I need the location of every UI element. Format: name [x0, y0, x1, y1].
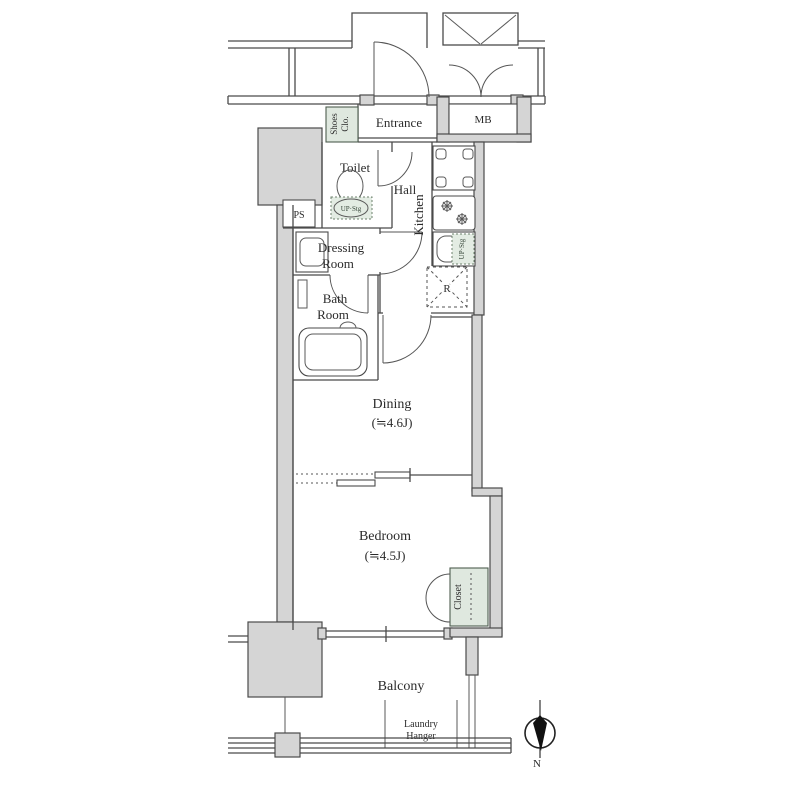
shoes-closet-label-2: Clo. — [340, 116, 350, 131]
laundry-hanger-label-1: Laundry — [404, 719, 438, 730]
floor-plan-page: MB Shoes Clo. Entrance Toilet UP·Stg Hal… — [0, 0, 785, 800]
kitchen-upper-storage-label: UP·Stg — [458, 238, 466, 259]
dining-size-label: (≒4.6J) — [372, 415, 413, 430]
dressing-room-label-2: Room — [322, 256, 354, 271]
toilet-upper-storage-label: UP·Stg — [341, 205, 362, 213]
dressing-door-icon — [380, 232, 422, 274]
sink-icon: UP·Stg — [433, 232, 475, 266]
washer-space-icon — [433, 146, 475, 190]
pipe-space-label: PS — [293, 210, 304, 221]
bedroom-size-label: (≒4.5J) — [365, 548, 406, 563]
meter-box-label: MB — [474, 114, 491, 126]
hall-door-icon — [378, 150, 412, 186]
dining-room: Dining (≒4.6J) — [372, 315, 482, 491]
dining-label: Dining — [373, 397, 412, 412]
closet: Closet — [426, 568, 488, 626]
refrigerator-label: R — [443, 283, 451, 295]
bath-counter-icon — [298, 280, 307, 308]
compass-icon: N — [525, 700, 555, 770]
laundry-hanger-label-2: Hanger — [406, 731, 436, 742]
meter-box: MB — [437, 97, 531, 142]
bedroom-label: Bedroom — [359, 529, 411, 544]
shoes-closet-label-1: Shoes — [329, 113, 339, 135]
kitchen-area: Kitchen UP·Stg — [378, 142, 484, 363]
dining-door-icon — [383, 315, 431, 363]
entrance-door-icon — [374, 42, 429, 97]
entrance-label: Entrance — [376, 115, 422, 130]
toilet-label: Toilet — [340, 160, 371, 175]
bedroom: Bedroom (≒4.5J) Closet — [318, 488, 502, 642]
meter-box-doors-icon — [449, 65, 513, 97]
entrance-area: Shoes Clo. Entrance — [326, 104, 437, 142]
stove-icon — [433, 196, 475, 230]
sliding-door-icon — [296, 468, 472, 486]
closet-label: Closet — [453, 584, 464, 610]
dressing-room-label-1: Dressing — [318, 240, 365, 255]
bath-room: Bath Room — [293, 275, 378, 380]
corridor-walls — [228, 13, 545, 105]
balcony-label: Balcony — [378, 679, 425, 694]
compass-north-label: N — [533, 758, 541, 770]
pipe-space: PS — [283, 200, 315, 227]
refrigerator-space-icon: R — [427, 267, 467, 307]
bath-room-label-1: Bath — [323, 291, 348, 306]
floor-plan-drawing: MB Shoes Clo. Entrance Toilet UP·Stg Hal… — [0, 0, 785, 800]
dressing-room: Dressing Room — [293, 205, 380, 630]
kitchen-label: Kitchen — [411, 194, 426, 236]
bedroom-window-icon — [318, 626, 452, 642]
closet-doors-icon — [426, 574, 450, 622]
bath-room-label-2: Room — [317, 307, 349, 322]
